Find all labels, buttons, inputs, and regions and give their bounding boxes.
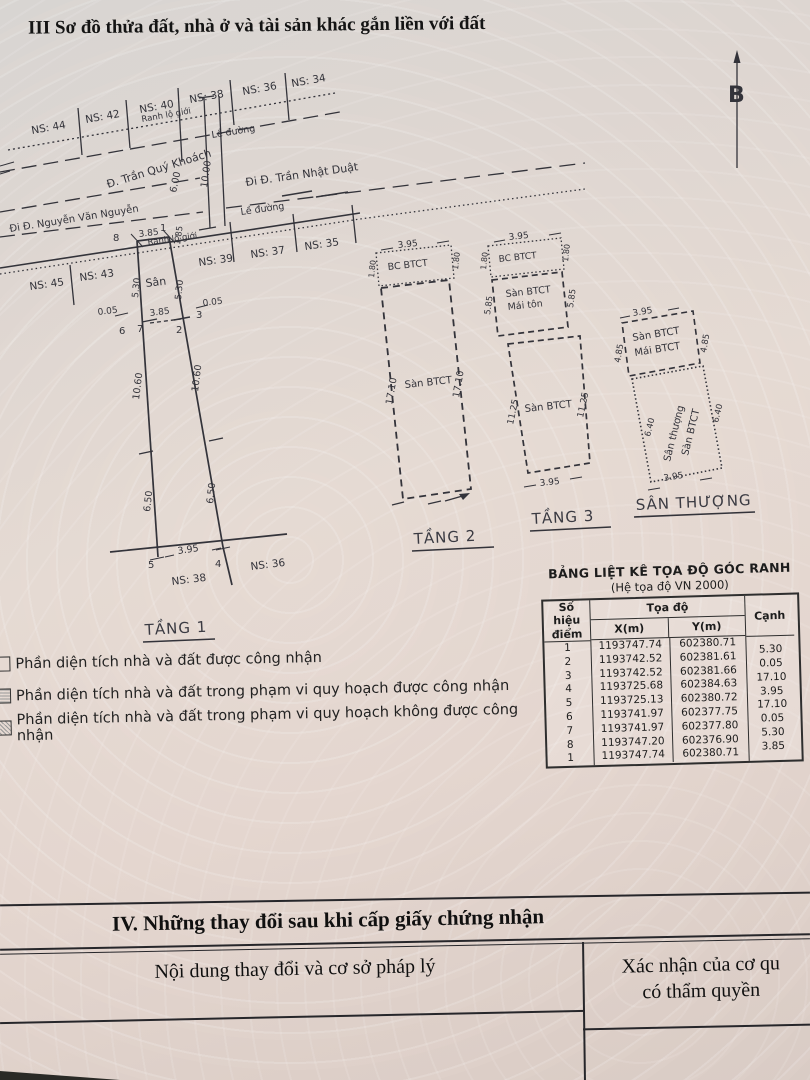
rf-dim-bottom: 3.95	[663, 471, 684, 484]
point-7: 7	[137, 324, 143, 335]
cell-point: 5	[546, 696, 592, 711]
coordinate-table: Số hiệu điểm 1 2 3 4 5 6 7 8 1 Tọa độ	[541, 592, 804, 768]
cell-point: 4	[546, 683, 592, 698]
ns-label: NS: 34	[290, 72, 327, 90]
col-header-edge: Cạnh	[745, 595, 794, 637]
divider-line	[0, 892, 810, 906]
north-label: B	[728, 83, 745, 108]
cell-y: 602380.71	[673, 746, 749, 762]
point-8: 8	[113, 233, 119, 244]
dim-bottom: 3.95	[177, 543, 199, 557]
dim-1060-right: 10.60	[190, 364, 204, 392]
ns-label: NS: 36	[241, 80, 278, 98]
street-label-tnd: Đi Đ. Trần Nhật Duật	[245, 160, 360, 189]
f3-bc-label: BC BTCT	[498, 251, 537, 265]
ns-label: NS: 39	[198, 252, 234, 269]
section4-right-header: Xác nhận của cơ qu có thẩm quyền	[591, 950, 810, 1007]
yard-label: Sân	[145, 275, 167, 290]
north-arrow-icon	[734, 50, 741, 168]
roof-label: SÂN THƯỢNG	[635, 490, 752, 514]
rf-upper-left: 4.85	[613, 343, 626, 363]
ns-label: NS: 35	[304, 236, 340, 253]
f2-bc-label: BC BTCT	[387, 258, 428, 273]
section4-right-line1: Xác nhận của cơ qu	[591, 950, 809, 981]
edge-value: 0.05	[747, 657, 795, 671]
divider-line	[583, 1024, 810, 1030]
curb-label: Lề đường	[211, 123, 256, 141]
f3-lower-right: 11.25	[576, 391, 591, 418]
edge-value: 3.85	[749, 740, 797, 754]
legend-symbol-planning-recognized-icon	[0, 688, 11, 703]
dim-1060-left: 10.60	[131, 372, 145, 400]
legend-symbol-planning-not-recognized-icon	[0, 720, 12, 735]
f2-bc-right: 1.80	[451, 252, 462, 271]
point-5: 5	[148, 560, 154, 571]
ns-38-label: NS: 38	[171, 572, 207, 588]
edge-value: 5.30	[746, 643, 794, 657]
col-header-x: X(m)	[591, 618, 669, 639]
f3-upper-right: 5.85	[566, 288, 579, 308]
f3-upper2: Mái tôn	[507, 298, 543, 313]
ns-label: NS: 43	[79, 267, 115, 284]
curb-label-2: Lề đường	[240, 201, 285, 218]
rf-lower-left: 6.40	[643, 417, 657, 438]
point-2: 2	[176, 325, 182, 336]
floor1-label: TẦNG 1	[143, 615, 208, 639]
edge-value: 0.05	[748, 712, 796, 726]
f3-bc-right: 1.80	[561, 244, 572, 263]
cell-x: 1193747.74	[594, 748, 672, 764]
point-6: 6	[119, 326, 125, 337]
f2-bc-left: 1.80	[367, 260, 378, 279]
dim-600: 6.00	[168, 171, 183, 194]
f3-dim-top: 3.95	[508, 231, 529, 243]
dim-530-left: 5.30	[131, 277, 143, 298]
ns-label: NS: 44	[30, 119, 67, 137]
cell-point: 6	[546, 710, 592, 725]
point-4: 4	[215, 559, 221, 570]
certificate-page: III Sơ đồ thửa đất, nhà ở và tài sản khá…	[0, 0, 810, 1080]
floor3-outline	[488, 233, 590, 487]
f3-dim-bottom: 3.95	[539, 477, 560, 489]
dim-530-right: 5.30	[174, 279, 186, 300]
cell-point: 7	[547, 724, 593, 739]
cell-point: 8	[547, 738, 593, 753]
legend-text: Phần diện tích nhà và đất được công nhận	[15, 650, 322, 672]
section4-left-header: Nội dung thay đổi và cơ sở pháp lý	[55, 953, 535, 986]
dim-650-left: 6.50	[142, 490, 155, 512]
side-street-right	[219, 96, 225, 226]
f2-dim-top: 3.95	[397, 239, 418, 251]
cell-point: 1	[544, 641, 590, 656]
street-label-tqk: Đ. Trần Quý Khoách	[105, 147, 213, 191]
f3-bc-left: 1.80	[479, 252, 490, 271]
rf-upper-right: 4.85	[699, 333, 712, 353]
divider-line	[0, 1010, 585, 1024]
col-header-y: Y(m)	[668, 616, 745, 637]
ns-label: NS: 42	[84, 108, 120, 126]
f2-san-label: Sàn BTCT	[404, 374, 453, 391]
ns-label: NS: 45	[29, 276, 65, 293]
floor2-label: TẦNG 2	[412, 524, 477, 548]
ns-36-label: NS: 36	[250, 557, 286, 573]
section4-title: IV. Những thay đổi sau khi cấp giấy chứn…	[112, 904, 545, 937]
cell-point: 2	[545, 655, 591, 670]
rf-lower-right: 6.40	[711, 403, 725, 424]
floor3-label: TẦNG 3	[530, 504, 595, 528]
rf-dim-top: 3.95	[632, 306, 653, 319]
edge-value: 17.10	[747, 671, 795, 685]
coordinate-table-block: BẢNG LIỆT KÊ TỌA ĐỘ GÓC RANH (Hệ tọa độ …	[540, 559, 804, 768]
f2-side-right: 17.10	[451, 370, 467, 399]
point-1: 1	[160, 223, 166, 234]
cell-point: 1	[547, 752, 593, 767]
edge-value: 17.10	[748, 698, 796, 712]
ns-label: NS: 37	[250, 244, 286, 261]
f2-side-left: 17.10	[384, 377, 400, 406]
edge-value: 5.30	[749, 726, 797, 740]
dim-front: 3.85	[149, 307, 170, 319]
legend-text: Phần diện tích nhà và đất trong phạm vi …	[16, 678, 510, 704]
dim-1000: 10.00	[199, 160, 214, 188]
col-header-point-1: Số hiệu	[543, 600, 590, 627]
dim-650-right: 6.50	[205, 482, 218, 504]
point-3: 3	[196, 310, 202, 321]
f3-upper-left: 5.85	[483, 295, 496, 315]
legend: Phần diện tích nhà và đất được công nhận…	[0, 637, 541, 744]
dim-005-right: 0.05	[202, 297, 223, 309]
section4-right-line2: có thẩm quyền	[592, 976, 810, 1007]
cell-point: 3	[545, 669, 591, 684]
f3-lower-label: Sàn BTCT	[524, 398, 573, 415]
legend-symbol-recognized-icon	[0, 656, 11, 671]
cadastral-diagram: B	[0, 0, 810, 660]
col-header-point-2: điểm	[544, 627, 590, 641]
f3-upper1: Sàn BTCT	[505, 284, 551, 300]
